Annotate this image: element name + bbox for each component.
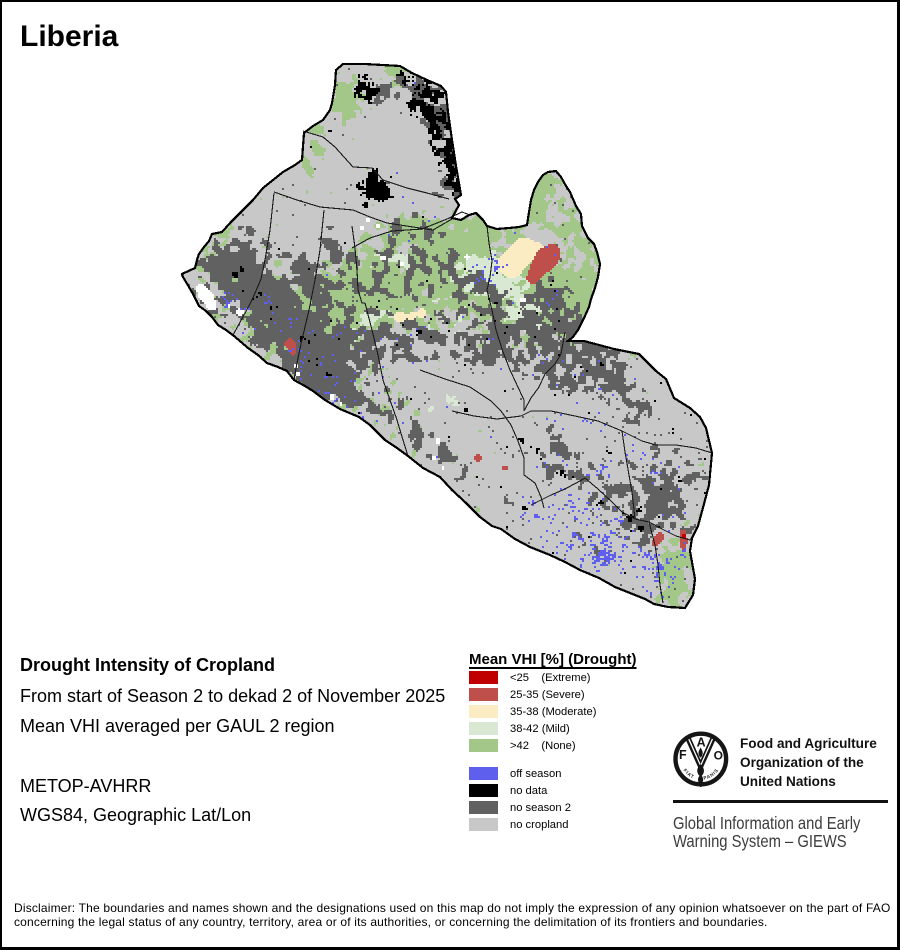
svg-text:A: A — [697, 735, 706, 749]
svg-text:O: O — [714, 748, 723, 762]
svg-text:F: F — [679, 748, 687, 762]
